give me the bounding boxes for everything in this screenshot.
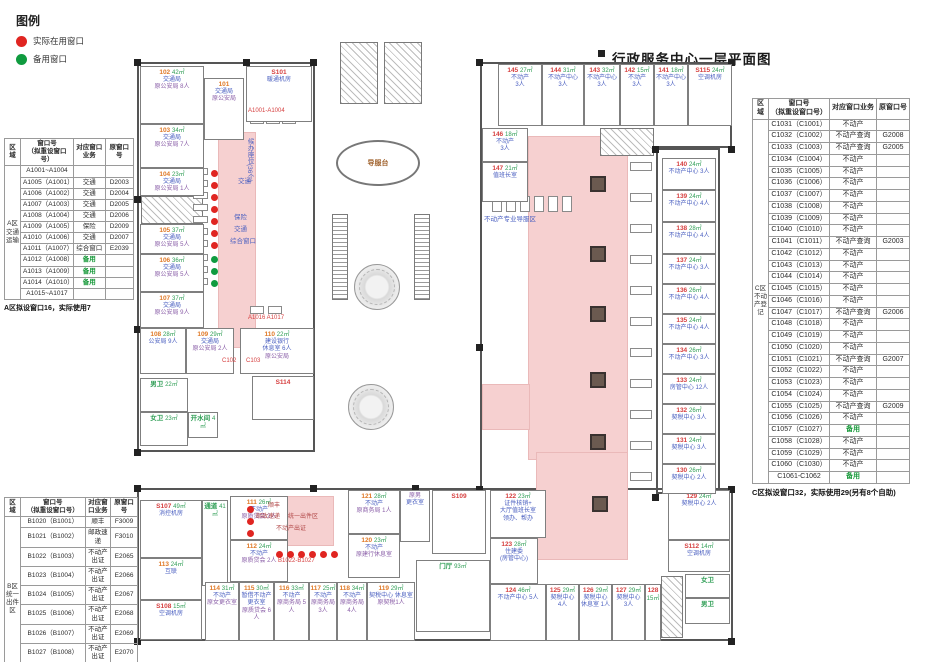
table-cell: 不动产出证 <box>85 605 110 624</box>
table-row: A1008（A1004）交通D2006 <box>5 210 134 221</box>
table-cell: C1056（C1026） <box>769 413 830 425</box>
table-b-container: 区域窗口号（拟重设窗口号）对应窗口业务原窗口号B区统一出件区B1020（B100… <box>4 497 138 662</box>
table-a-footer: A区拟设窗口16，实际使用7 <box>4 303 134 313</box>
service-counter <box>268 306 282 314</box>
room-S109: S109 <box>432 490 486 554</box>
service-counter <box>630 441 652 450</box>
spare-window-dot <box>211 256 218 263</box>
room-text: 大厅值班长室 <box>491 508 545 515</box>
room-text: 开水间 4㎡ <box>189 415 217 431</box>
plan-label: 候办座位(36个) <box>246 138 253 182</box>
structural-column <box>598 50 605 57</box>
room-text: 34㎡ <box>352 586 365 592</box>
room-text: 121 28㎡ <box>349 493 399 501</box>
room-text: 139 24㎡ <box>663 193 715 201</box>
table-cell: A1011（A1007） <box>21 244 74 255</box>
ornamental-column <box>590 372 606 388</box>
table-cell <box>877 436 910 448</box>
table-cell: 不动产 <box>830 190 877 202</box>
table-cell: C1043（C1013） <box>769 260 830 272</box>
room-text: 契税中心 2人 <box>663 475 715 482</box>
tableC: 区域窗口号（拟重设窗口号）对应窗口业务原窗口号C区不动产登记C1031（C100… <box>752 98 910 484</box>
room-text: 129 24㎡ <box>669 493 729 501</box>
room-text: 29㎡ <box>628 588 641 594</box>
room-text: 29㎡ <box>562 588 575 594</box>
table-cell: 不动产 <box>830 366 877 378</box>
table-cell: C1037（C1007） <box>769 190 830 202</box>
room-110: 110 22㎡建设银行休息室 6人原公安局 <box>240 328 314 374</box>
table-cell: C1038（C1008） <box>769 201 830 213</box>
column-header: 对应窗口业务 <box>73 139 105 166</box>
room-text: 领办、帮办 <box>491 516 545 523</box>
table-cell: A1007（A1003） <box>21 199 74 210</box>
table-cell: C1059（C1029） <box>769 448 830 460</box>
room-text: 不动产中心 4人 <box>663 295 715 302</box>
column-header: 窗口号（拟重设窗口号） <box>769 99 830 120</box>
room-text: 120 23㎡ <box>349 537 399 545</box>
table-cell: B1024（B1005） <box>21 586 86 605</box>
in-use-window-dot <box>247 530 254 537</box>
table-cell: 不动产 <box>830 154 877 166</box>
table-cell: C1055（C1025） <box>769 401 830 413</box>
plan-label: 交通 <box>234 226 247 233</box>
table-cell <box>877 178 910 190</box>
table-cell: C1052（C1022） <box>769 366 830 378</box>
room-text: 24㎡ <box>689 258 702 264</box>
region-cell: B区统一出件区 <box>5 517 21 662</box>
plan-label: B1022-B1027 <box>278 558 315 565</box>
room-text: 104 23㎡ <box>141 171 203 179</box>
in-use-window-dot <box>247 506 254 513</box>
room-text: 原商务局 5人 <box>275 600 308 614</box>
table-cell: 不动产出证 <box>85 643 110 662</box>
table-cell: 不动产 <box>830 260 877 272</box>
room-女卫: 女卫 23㎡ <box>140 412 188 446</box>
room-text: 公安局 9人 <box>141 339 185 346</box>
room-text: 41㎡ <box>212 504 226 518</box>
room-text: 131 24㎡ <box>663 437 715 445</box>
room-text: 原公安局 <box>205 96 243 103</box>
table-row: A1013（A1009）备用 <box>5 266 134 277</box>
room-text: 140 24㎡ <box>663 161 715 169</box>
table-row: C1038（C1008）不动产 <box>753 201 910 213</box>
room-132: 132 26㎡契税中心 3人 <box>662 404 716 434</box>
table-row: C1045（C1015）不动产 <box>753 284 910 296</box>
plan-label: 统一出件区 <box>288 514 318 521</box>
room-text: 46㎡ <box>518 588 531 594</box>
room-138: 138 28㎡不动产中心 4人 <box>662 222 716 254</box>
table-row: C1054（C1024）不动产 <box>753 389 910 401</box>
room-116: 116 33㎡不动产原商务局 5人 <box>274 582 309 641</box>
room-text: 3人 <box>655 82 687 89</box>
room-text: 3人 <box>621 82 653 89</box>
room-text: 117 25㎡ <box>310 585 336 593</box>
in-use-window-dot <box>211 218 218 225</box>
room-text: 18㎡ <box>671 68 684 74</box>
room-text: 原商务局 1人 <box>349 508 399 515</box>
room-103: 103 34㎡交通局原公安局 7人 <box>140 124 204 168</box>
table-c-footer: C区拟设窗口32，实际使用29(另有8个自助) <box>752 487 930 498</box>
room-text: 127 29㎡ <box>613 587 644 595</box>
room-text: 122 23㎡ <box>491 493 545 501</box>
room-text: 132 26㎡ <box>663 407 715 415</box>
room-137: 137 24㎡不动产中心 3人 <box>662 254 716 284</box>
table-cell <box>73 166 105 177</box>
table-row: B1025（B1006）不动产出证E2068 <box>5 605 138 624</box>
column-header: 原窗口号 <box>877 99 910 120</box>
room-text: 值班长室 <box>483 173 527 180</box>
table-cell: B1022（B1003） <box>21 547 86 566</box>
room-男卫: 男卫 <box>685 598 730 624</box>
room-text: 33㎡ <box>291 586 304 592</box>
table-cell: A1013（A1009） <box>21 266 74 277</box>
table-row: A区交通运输A1001~A1004 <box>5 166 134 177</box>
table-cell: G2008 <box>877 131 910 143</box>
table-cell: D2005 <box>105 199 133 210</box>
table-cell: C1040（C1010） <box>769 225 830 237</box>
table-cell: 交通 <box>73 177 105 188</box>
table-cell: 不动产 <box>830 436 877 448</box>
table-cell <box>877 201 910 213</box>
room-text: 141 18㎡ <box>655 67 687 75</box>
table-cell <box>877 460 910 472</box>
table-cell: 不动产 <box>830 331 877 343</box>
table-row: C1060（C1030）不动产 <box>753 460 910 472</box>
table-cell: C1053（C1023） <box>769 378 830 390</box>
table-cell <box>877 284 910 296</box>
room-text: 3人 <box>483 146 527 153</box>
room-104: 104 23㎡交通局原公安局 1人 <box>140 168 204 196</box>
escalator <box>414 214 430 300</box>
room-140: 140 24㎡不动产中心 3人 <box>662 158 716 190</box>
room-text: 24㎡ <box>689 318 702 324</box>
table-cell <box>877 119 910 131</box>
table-cell: 不动产查询 <box>830 237 877 249</box>
table-cell: 顺丰 <box>85 517 110 528</box>
table-cell: E2065 <box>111 547 138 566</box>
room-text: 112 24㎡ <box>231 543 287 551</box>
structural-column <box>310 59 317 66</box>
room-text: 22㎡ <box>165 382 178 388</box>
table-cell: B1020（B1001） <box>21 517 86 528</box>
room-text: 原商务局 4人 <box>338 600 366 614</box>
table-cell: 交通 <box>73 233 105 244</box>
table-cell: C1036（C1006） <box>769 178 830 190</box>
table-row: C区不动产登记C1031（C1001）不动产 <box>753 119 910 131</box>
table-cell: 交通 <box>73 199 105 210</box>
room-text: 原公安局 2人 <box>187 346 233 353</box>
table-cell: G2005 <box>877 143 910 155</box>
room-S115: S115 24㎡空调机房 <box>688 64 732 126</box>
table-cell: D2009 <box>105 222 133 233</box>
table-row: C1057（C1027）备用 <box>753 425 910 437</box>
table-cell: C1031（C1001） <box>769 119 830 131</box>
table-cell: C1042（C1012） <box>769 248 830 260</box>
room-144: 144 31㎡不动产中心3人 <box>542 64 584 126</box>
room-text: 26㎡ <box>689 468 702 474</box>
table-c-windows: 区域窗口号（拟重设窗口号）对应窗口业务原窗口号C区不动产登记C1031（C100… <box>752 98 930 484</box>
room-123: 123 28㎡住建委(房管中心) <box>490 538 538 584</box>
room-text: 113 24㎡ <box>141 561 201 569</box>
table-cell: 保险 <box>73 222 105 233</box>
room-text: 更衣室 <box>401 500 429 507</box>
spare-window-dot <box>211 268 218 275</box>
room-text: S112 14㎡ <box>669 543 729 551</box>
room-text: 130 26㎡ <box>663 467 715 475</box>
room-text: 29㎡ <box>391 586 404 592</box>
room-text: 原公安局 1人 <box>141 186 203 193</box>
table-row: A1006（A1002）交通D2004 <box>5 188 134 199</box>
table-cell <box>877 331 910 343</box>
room-129: 129 24㎡契税中心 2人 <box>668 490 730 540</box>
room-text: 49㎡ <box>173 504 186 510</box>
in-use-window-dot <box>276 551 283 558</box>
table-cell: D2003 <box>105 177 133 188</box>
plan-label: 综合窗口 <box>230 238 256 245</box>
room-139: 139 24㎡不动产中心 4人 <box>662 190 716 222</box>
table-row: C1037（C1007）不动产 <box>753 190 910 202</box>
room-text: 28㎡ <box>689 226 702 232</box>
room-text: 房管中心 12人 <box>663 385 715 392</box>
room-text: 24㎡ <box>689 378 702 384</box>
ornamental-column <box>590 176 606 192</box>
room-text: 28㎡ <box>163 332 176 338</box>
table-row: C1055（C1025）不动产查询G2009 <box>753 401 910 413</box>
room-text: 不动产中心 5人 <box>491 595 545 602</box>
stairs <box>384 42 422 104</box>
room-text: 门厅 93㎡ <box>417 563 489 571</box>
room-text: 互联 <box>141 569 201 576</box>
room-text: 147 21㎡ <box>483 165 527 173</box>
table-cell: C1048（C1018） <box>769 319 830 331</box>
table-cell: C1058（C1028） <box>769 436 830 448</box>
room-text: 24㎡ <box>171 562 184 568</box>
plan-label: 邮政速递 <box>256 514 280 521</box>
table-row: C1033（C1003）不动产查询G2005 <box>753 143 910 155</box>
room-女卫: 女卫 <box>685 574 730 598</box>
table-cell: 不动产出证 <box>85 566 110 585</box>
table-cell: C1050（C1020） <box>769 342 830 354</box>
table-cell: 不动产查询 <box>830 354 877 366</box>
room-text: 18㎡ <box>505 132 518 138</box>
tableA: 区域窗口号（拟重设窗口号）对应窗口业务原窗口号A区交通运输A1001~A1004… <box>4 138 134 300</box>
table-cell <box>877 260 910 272</box>
table-row: C1039（C1009）不动产 <box>753 213 910 225</box>
table-cell: B1021（B1002） <box>21 528 86 547</box>
table-row: C1058（C1028）不动产 <box>753 436 910 448</box>
table-cell: 邮政速递 <box>85 528 110 547</box>
room-text: 108 28㎡ <box>141 331 185 339</box>
table-cell: D2006 <box>105 210 133 221</box>
room-127: 127 29㎡契税中心3人 <box>612 584 645 641</box>
table-row: A1015~A1017 <box>5 288 134 299</box>
room-text: 32㎡ <box>602 68 615 74</box>
room-text: 145 27㎡ <box>499 67 541 75</box>
spare-window-dot <box>211 280 218 287</box>
structural-column <box>476 59 483 66</box>
room-text: 契税中心 3人 <box>663 445 715 452</box>
table-cell: A1014（A1010） <box>21 277 74 288</box>
room-text: 37㎡ <box>172 228 185 234</box>
table-cell: C1051（C1021） <box>769 354 830 366</box>
room-text: 原公安局 8人 <box>141 84 203 91</box>
plan-label: 顺丰 <box>268 503 280 510</box>
service-counter <box>630 410 652 419</box>
room-text: 27㎡ <box>520 68 533 74</box>
table-row: A1007（A1003）交通D2005 <box>5 199 134 210</box>
room-text: 3人 <box>543 82 583 89</box>
guide-desk-label: 导服台 <box>368 158 389 168</box>
room-146: 146 18㎡不动产3人 <box>482 128 528 162</box>
table-cell: 不动产 <box>830 319 877 331</box>
room-text: 42㎡ <box>172 70 185 76</box>
column-header: 窗口号（拟重设窗口号） <box>21 139 74 166</box>
room-text: 不动产中心 3人 <box>663 265 715 272</box>
table-cell: 不动产 <box>830 201 877 213</box>
plan-label: C102 <box>222 358 236 365</box>
room-text: S114 <box>253 379 313 387</box>
room-text: 空调机房 <box>689 75 731 82</box>
table-cell <box>877 366 910 378</box>
plan-label: C103 <box>246 358 260 365</box>
room-text: 原公安局 5人 <box>141 242 203 249</box>
table-cell <box>877 378 910 390</box>
room-text: 24㎡ <box>689 194 702 200</box>
room-text: 24㎡ <box>699 494 712 500</box>
structural-column <box>243 59 250 66</box>
room-text: 4人 <box>547 602 578 609</box>
table-row: C1048（C1018）不动产 <box>753 319 910 331</box>
table-cell: A1010（A1006） <box>21 233 74 244</box>
room-text: 29㎡ <box>210 332 223 338</box>
table-row: C1040（C1010）不动产 <box>753 225 910 237</box>
table-cell: 不动产 <box>830 378 877 390</box>
zone-waiting <box>482 384 530 430</box>
room-text: 110 22㎡ <box>241 331 313 339</box>
room-text: 不动产中心 4人 <box>663 233 715 240</box>
table-cell: 不动产 <box>830 342 877 354</box>
room-135: 135 24㎡不动产中心 4人 <box>662 314 716 344</box>
service-counter <box>534 196 544 212</box>
room-text: 114 31㎡ <box>206 585 238 593</box>
table-cell: C1032（C1002） <box>769 131 830 143</box>
room-text: 126 29㎡ <box>580 587 611 595</box>
table-cell: 备用 <box>830 472 877 484</box>
table-cell <box>877 154 910 166</box>
column-header: 原窗口号 <box>105 139 133 166</box>
table-row: C1046（C1016）不动产 <box>753 295 910 307</box>
room-136: 136 26㎡不动产中心 4人 <box>662 284 716 314</box>
room-text: 142 15㎡ <box>621 67 653 75</box>
room-text: 23㎡ <box>374 538 387 544</box>
table-cell <box>877 389 910 401</box>
table-cell: 不动产查询 <box>830 307 877 319</box>
table-cell: B1023（B1004） <box>21 566 86 585</box>
column-header: 对应窗口业务 <box>830 99 877 120</box>
room-text: 134 26㎡ <box>663 347 715 355</box>
structural-column <box>728 146 735 153</box>
table-cell: 不动产出证 <box>85 547 110 566</box>
table-cell: 综合窗口 <box>73 244 105 255</box>
table-row: C1061-C1062备用 <box>753 472 910 484</box>
room-106: 106 36㎡交通局原公安局 5人 <box>140 254 204 292</box>
column-header: 区域 <box>753 99 769 120</box>
service-counter <box>630 379 652 388</box>
service-counter <box>193 216 208 223</box>
room-text: 138 28㎡ <box>663 225 715 233</box>
room-text: 25㎡ <box>323 586 336 592</box>
room-text: 116 33㎡ <box>275 585 308 593</box>
table-cell: 不动产 <box>830 178 877 190</box>
room-text: 女卫 23㎡ <box>141 415 187 423</box>
stairs <box>600 128 654 156</box>
room-102: 102 42㎡交通局原公安局 8人 <box>140 66 204 124</box>
zone-c-hall-lower <box>536 452 628 560</box>
table-cell: C1054（C1024） <box>769 389 830 401</box>
table-row: C1043（C1013）不动产 <box>753 260 910 272</box>
in-use-window-dot <box>211 170 218 177</box>
room-text: 93㎡ <box>454 564 467 570</box>
room-text: S108 15㎡ <box>141 603 201 611</box>
room-text: 136 26㎡ <box>663 287 715 295</box>
structural-column <box>476 344 483 351</box>
room-text: 23㎡ <box>518 494 531 500</box>
room-text: 118 34㎡ <box>338 585 366 593</box>
table-cell <box>877 472 910 484</box>
table-cell: D2007 <box>105 233 133 244</box>
room-S114: S114 <box>252 376 314 420</box>
floor-medallion <box>348 384 394 430</box>
table-cell: A1008（A1004） <box>21 210 74 221</box>
room-121: 121 28㎡不动产原商务局 1人 <box>348 490 400 534</box>
table-row: B1024（B1005）不动产出证E2067 <box>5 586 138 605</box>
room-147: 147 21㎡值班长室 <box>482 162 528 202</box>
table-cell: C1047（C1017） <box>769 307 830 319</box>
in-use-window-dot <box>211 230 218 237</box>
table-row: A1009（A1005）保险D2009 <box>5 222 134 233</box>
table-row: A1005（A1001）交通D2003 <box>5 177 134 188</box>
room-text: 契税中心 2人 <box>669 501 729 508</box>
table-cell: A1015~A1017 <box>21 288 74 299</box>
table-row: C1034（C1004）不动产 <box>753 154 910 166</box>
room-text: 137 24㎡ <box>663 257 715 265</box>
structural-column <box>652 494 659 501</box>
service-counter <box>630 286 652 295</box>
room-text: 原公安局 5人 <box>141 272 203 279</box>
room-text: 3人 <box>613 602 644 609</box>
room-text: 31㎡ <box>563 68 576 74</box>
table-cell: 备用 <box>73 255 105 266</box>
service-counter <box>630 162 652 171</box>
room-124: 124 46㎡不动产中心 5人 <box>490 584 546 641</box>
service-counter <box>250 306 264 314</box>
room-开水间: 开水间 4㎡ <box>188 412 218 438</box>
table-row: C1032（C1002）不动产查询G2008 <box>753 131 910 143</box>
table-cell: B1026（B1007） <box>21 624 86 643</box>
table-row: B1022（B1003）不动产出证E2065 <box>5 547 138 566</box>
table-cell <box>877 425 910 437</box>
room-text: 原女更衣室 <box>206 600 238 607</box>
room-text: 124 46㎡ <box>491 587 545 595</box>
service-counter <box>630 224 652 233</box>
structural-column <box>134 59 141 66</box>
room-125: 125 29㎡契税中心4人 <box>546 584 579 641</box>
room-133: 133 24㎡房管中心 12人 <box>662 374 716 404</box>
structural-column <box>134 449 141 456</box>
stairs <box>340 42 378 104</box>
room-text: 24㎡ <box>689 162 702 168</box>
tableB: 区域窗口号（拟重设窗口号）对应窗口业务原窗口号B区统一出件区B1020（B100… <box>4 497 138 662</box>
